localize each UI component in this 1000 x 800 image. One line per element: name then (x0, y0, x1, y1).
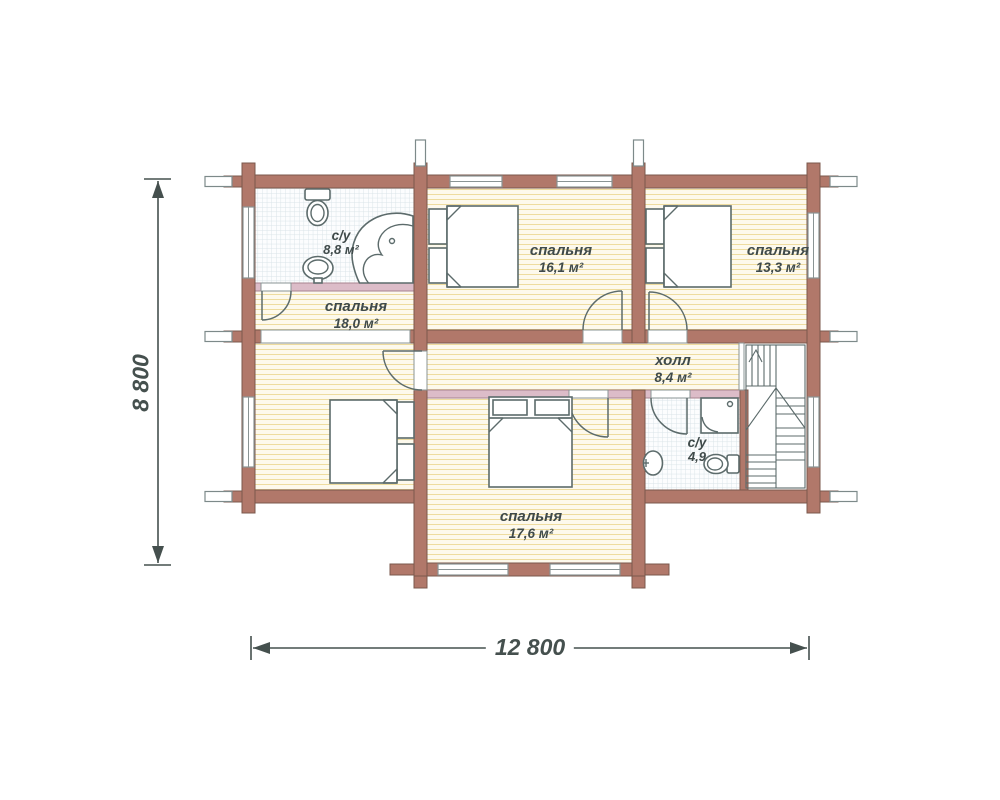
hall-stair-divider (739, 343, 744, 390)
floor-plan: с/у 8,8 м² спальня 16,1 м² спальня 13,3 … (0, 0, 1000, 800)
floor-plan-drawing (0, 0, 1000, 800)
floor-hall (427, 343, 739, 390)
bed-bedroom-176 (489, 397, 572, 487)
floor-bedroom-180-upper (255, 291, 414, 330)
sink-icon (643, 451, 663, 475)
shower-icon (701, 398, 738, 433)
toilet-icon (305, 189, 330, 226)
dimension-height-arrow (144, 179, 171, 565)
dimension-width-arrow (251, 636, 809, 660)
toilet-icon (704, 455, 739, 474)
